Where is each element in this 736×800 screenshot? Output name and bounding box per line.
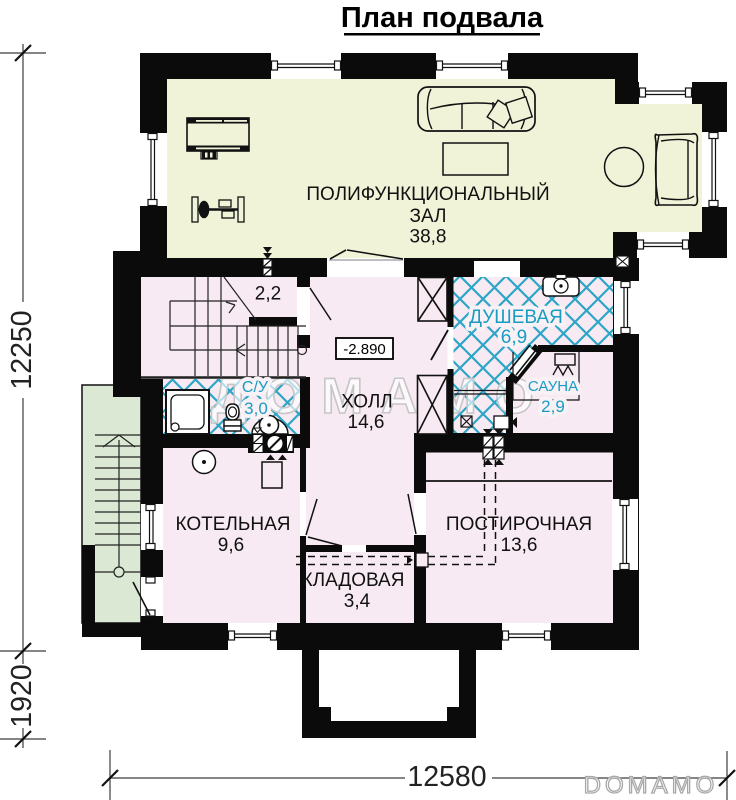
svg-text:6,9: 6,9 <box>501 327 527 348</box>
svg-text:13,6: 13,6 <box>501 535 538 556</box>
svg-text:ПОСТИРОЧНАЯ: ПОСТИРОЧНАЯ <box>446 514 592 535</box>
svg-text:План подвала: План подвала <box>341 2 544 34</box>
svg-text:ПОЛИФУНКЦИОНАЛЬНЫЙ: ПОЛИФУНКЦИОНАЛЬНЫЙ <box>306 183 549 205</box>
svg-text:14,6: 14,6 <box>348 412 385 433</box>
svg-text:ДУШЕВАЯ: ДУШЕВАЯ <box>469 307 563 328</box>
svg-text:ЗАЛ: ЗАЛ <box>409 206 446 227</box>
svg-text:1920: 1920 <box>6 664 38 727</box>
svg-text:12250: 12250 <box>6 310 38 389</box>
svg-text:С/У: С/У <box>242 379 269 396</box>
svg-text:12580: 12580 <box>407 761 486 793</box>
svg-text:38,8: 38,8 <box>410 227 447 248</box>
svg-text:2,2: 2,2 <box>255 284 281 305</box>
svg-text:9,6: 9,6 <box>218 535 244 556</box>
svg-text:-2.890: -2.890 <box>343 341 386 358</box>
svg-text:КОТЕЛЬНАЯ: КОТЕЛЬНАЯ <box>176 514 291 535</box>
svg-text:DOMAMO: DOMAMO <box>584 772 719 799</box>
svg-text:2,9: 2,9 <box>541 397 565 416</box>
svg-text:3,0: 3,0 <box>244 399 268 418</box>
svg-text:3,4: 3,4 <box>344 591 371 612</box>
svg-text:ХОЛЛ: ХОЛЛ <box>341 392 393 413</box>
svg-text:КЛАДОВАЯ: КЛАДОВАЯ <box>302 570 405 591</box>
svg-text:САУНА: САУНА <box>528 378 578 395</box>
